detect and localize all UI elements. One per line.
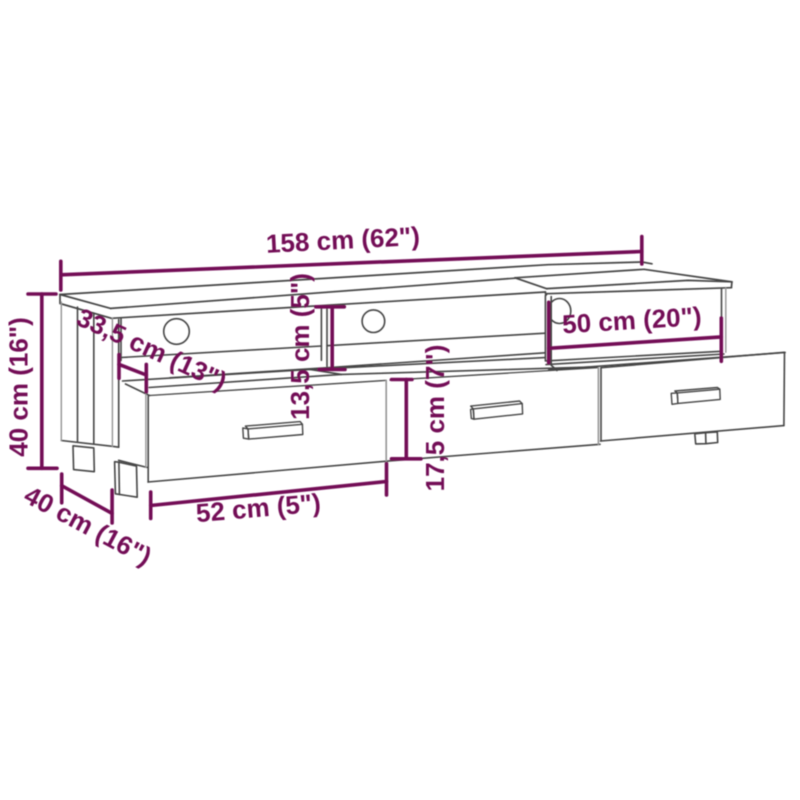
svg-text:158 cm (62"): 158 cm (62") — [265, 221, 420, 259]
svg-text:13,5 cm (5"): 13,5 cm (5") — [285, 273, 315, 420]
svg-text:17,5 cm (7"): 17,5 cm (7") — [420, 345, 450, 492]
svg-text:40 cm (16"): 40 cm (16") — [3, 317, 33, 457]
svg-text:52 cm (5"): 52 cm (5") — [195, 487, 322, 528]
svg-text:50 cm (20"): 50 cm (20") — [561, 301, 702, 339]
svg-text:40 cm (16"): 40 cm (16") — [19, 480, 156, 572]
